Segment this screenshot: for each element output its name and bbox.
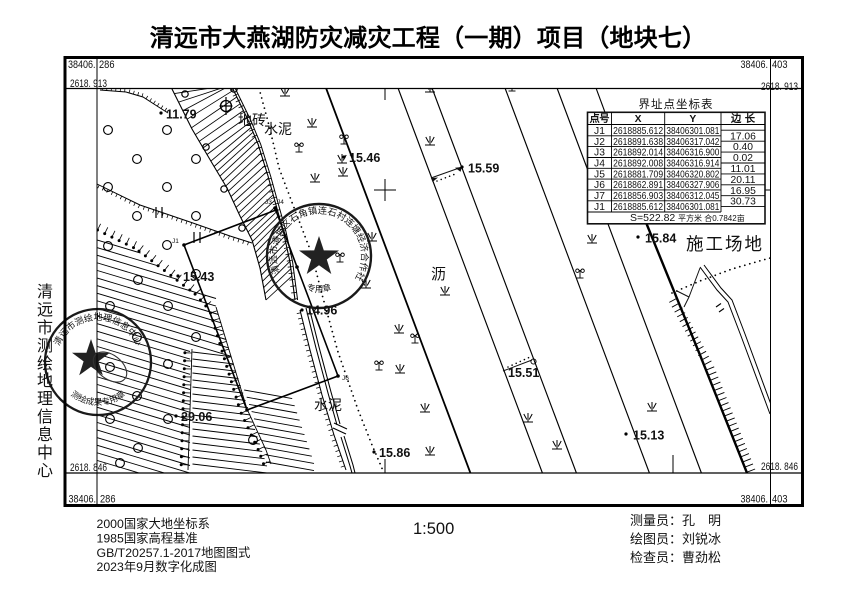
svg-text:Y: Y xyxy=(689,114,696,125)
svg-text:16.95: 16.95 xyxy=(730,186,756,197)
svg-text:38406312.045: 38406312.045 xyxy=(666,191,719,202)
svg-text:403: 403 xyxy=(772,59,788,71)
svg-text:15.51: 15.51 xyxy=(508,366,539,380)
svg-text:水泥: 水泥 xyxy=(314,397,342,413)
svg-text:2023年9月数字化成图: 2023年9月数字化成图 xyxy=(97,559,217,574)
svg-text:点号: 点号 xyxy=(590,112,610,125)
svg-text:403: 403 xyxy=(772,494,788,506)
svg-text:J3: J3 xyxy=(265,199,272,206)
svg-text:J2: J2 xyxy=(594,137,605,148)
svg-text:清: 清 xyxy=(37,283,53,301)
svg-text:2618. 913: 2618. 913 xyxy=(70,78,107,90)
svg-text:0.40: 0.40 xyxy=(733,142,753,153)
svg-text:J6: J6 xyxy=(342,375,349,382)
svg-text:S=522.82: S=522.82 xyxy=(630,212,675,224)
svg-text:J3: J3 xyxy=(594,148,605,159)
svg-text:2618862.891: 2618862.891 xyxy=(613,180,663,191)
svg-text:J5: J5 xyxy=(594,169,605,180)
svg-text:息: 息 xyxy=(37,426,53,444)
svg-text:2618885.612: 2618885.612 xyxy=(613,126,663,137)
svg-text:GB/T20257.1-2017地图图式: GB/T20257.1-2017地图图式 xyxy=(97,546,251,560)
svg-text:11.01: 11.01 xyxy=(730,164,755,175)
svg-text:2000国家大地坐标系: 2000国家大地坐标系 xyxy=(97,516,210,531)
svg-text:20.11: 20.11 xyxy=(730,175,755,186)
svg-text:38406301.081: 38406301.081 xyxy=(666,126,719,137)
svg-text:11.79: 11.79 xyxy=(166,108,197,122)
svg-text:地砖: 地砖 xyxy=(238,112,266,128)
svg-text:38406.: 38406. xyxy=(69,494,97,506)
svg-text:心: 心 xyxy=(37,462,53,480)
svg-text:2618. 913: 2618. 913 xyxy=(761,81,798,93)
svg-text:38406327.906: 38406327.906 xyxy=(666,180,719,191)
svg-text:286: 286 xyxy=(100,494,116,506)
svg-text:2618. 846: 2618. 846 xyxy=(761,461,798,473)
svg-text:38406.: 38406. xyxy=(68,59,96,71)
svg-text:X: X xyxy=(635,114,642,125)
svg-text:沥: 沥 xyxy=(431,266,446,283)
svg-text:2618856.903: 2618856.903 xyxy=(613,191,663,202)
svg-text:测: 测 xyxy=(37,337,53,355)
svg-text:J4: J4 xyxy=(277,199,284,206)
svg-text:测量员：孔 明: 测量员：孔 明 xyxy=(630,513,721,528)
svg-text:38406317.042: 38406317.042 xyxy=(666,137,719,148)
svg-text:水泥: 水泥 xyxy=(264,121,292,137)
svg-text:清远市大燕湖防灾减灾工程（一期）项目（地块七）: 清远市大燕湖防灾减灾工程（一期）项目（地块七） xyxy=(150,24,707,52)
svg-text:1985国家高程基准: 1985国家高程基准 xyxy=(97,531,198,546)
svg-text:界址点坐标表: 界址点坐标表 xyxy=(639,97,714,111)
svg-text:2618. 846: 2618. 846 xyxy=(70,462,107,474)
svg-text:绘: 绘 xyxy=(37,355,53,373)
svg-text:市: 市 xyxy=(37,319,53,337)
svg-text:38406316.900: 38406316.900 xyxy=(666,148,719,159)
svg-text:J6: J6 xyxy=(594,180,605,191)
svg-text:2618892.008: 2618892.008 xyxy=(613,159,663,170)
svg-text:15.59: 15.59 xyxy=(468,162,499,176)
svg-text:2618881.709: 2618881.709 xyxy=(613,169,663,180)
svg-text:J4: J4 xyxy=(594,159,605,170)
svg-text:2618892.014: 2618892.014 xyxy=(613,148,663,159)
svg-text:29.06: 29.06 xyxy=(181,410,212,424)
svg-text:平方米 合0.7842亩: 平方米 合0.7842亩 xyxy=(678,213,745,223)
svg-text:15.13: 15.13 xyxy=(633,429,664,443)
svg-text:远: 远 xyxy=(37,301,53,319)
svg-text:理: 理 xyxy=(37,391,53,408)
svg-text:J7: J7 xyxy=(594,191,605,202)
svg-text:施工场地: 施工场地 xyxy=(686,234,764,254)
svg-text:0.02: 0.02 xyxy=(733,153,753,164)
svg-text:绘图员：刘锐冰: 绘图员：刘锐冰 xyxy=(630,532,721,547)
svg-text:中: 中 xyxy=(37,444,53,462)
svg-text:地: 地 xyxy=(37,372,53,390)
svg-text:17.06: 17.06 xyxy=(730,131,756,142)
svg-text:15.46: 15.46 xyxy=(349,151,380,165)
svg-text:286: 286 xyxy=(99,59,115,71)
svg-text:15.43: 15.43 xyxy=(183,270,214,284)
svg-text:J1: J1 xyxy=(594,202,605,213)
svg-text:信: 信 xyxy=(37,408,53,426)
svg-text:38406.: 38406. xyxy=(741,59,769,71)
svg-text:检查员：曹劲松: 检查员：曹劲松 xyxy=(630,550,721,565)
svg-text:15.86: 15.86 xyxy=(379,446,410,460)
svg-text:J1: J1 xyxy=(594,126,605,137)
svg-text:38406320.802: 38406320.802 xyxy=(666,169,719,180)
svg-text:30.73: 30.73 xyxy=(730,197,756,208)
svg-text:14.96: 14.96 xyxy=(306,304,337,318)
svg-text:38406.: 38406. xyxy=(741,494,769,506)
svg-text:1:500: 1:500 xyxy=(413,520,454,538)
svg-text:J1: J1 xyxy=(172,238,179,245)
svg-text:15.84: 15.84 xyxy=(645,232,676,246)
svg-text:2618891.638: 2618891.638 xyxy=(613,137,663,148)
svg-text:38406316.914: 38406316.914 xyxy=(666,159,719,170)
